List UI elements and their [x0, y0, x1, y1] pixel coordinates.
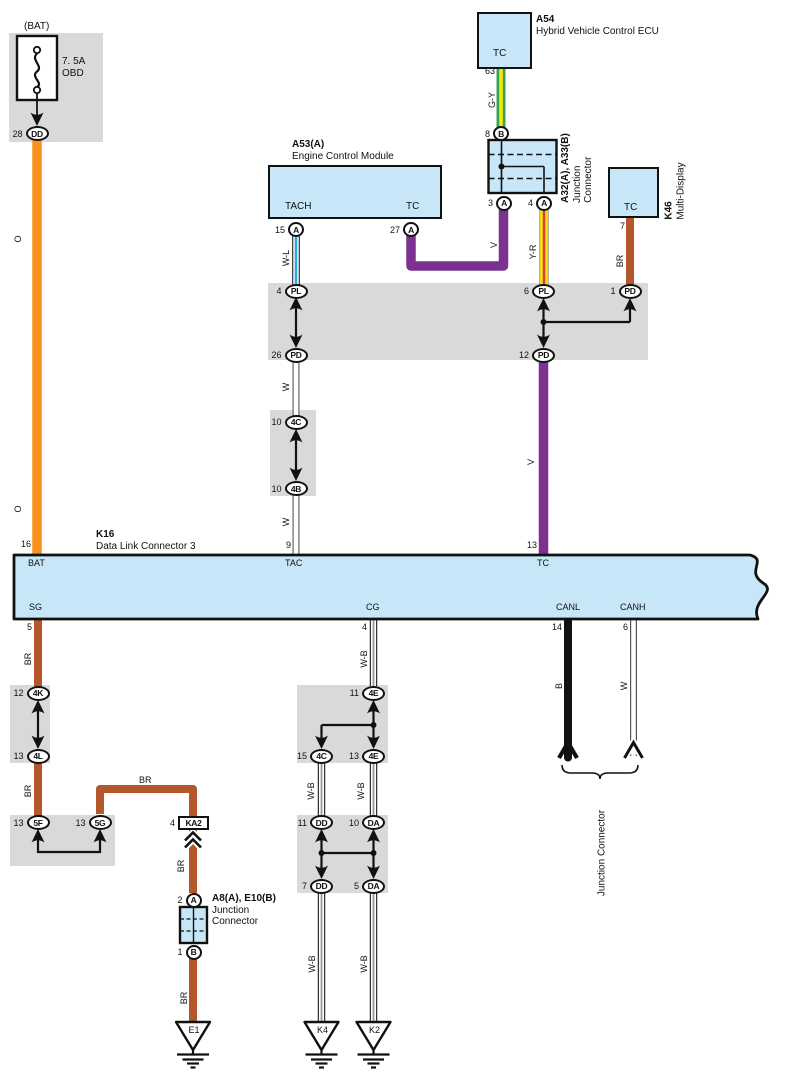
k16-terminal-bat: BAT [28, 558, 45, 568]
connector-oval: A [403, 222, 419, 237]
k16-id: K16 [96, 529, 114, 540]
connector-oval: DD [310, 879, 333, 894]
wire-label-wb-da: W-B [359, 955, 369, 972]
fuse-symbol [17, 36, 57, 126]
pin-number: 4 [276, 286, 281, 296]
wire-label-wb-dd: W-B [307, 955, 317, 972]
connector-oval: 4K [27, 686, 50, 701]
connector-4-ka2: 4 KA2 [178, 816, 209, 830]
connector-oval: 4E [362, 749, 385, 764]
pin-number: 10 [271, 417, 281, 427]
pin-number: 4 [528, 198, 533, 208]
connector-oval: A [186, 893, 202, 908]
wire-label-br-4l: BR [23, 785, 33, 798]
pin-number: 11 [298, 818, 307, 828]
connector-oval: A [536, 196, 552, 211]
connector-oval: PD [619, 284, 642, 299]
k46-name: Multi-Display [675, 162, 687, 219]
connector-13-4l: 13 4L [27, 749, 50, 764]
connector-1-pd: 1 PD [619, 284, 642, 299]
connector-oval: DD [26, 126, 49, 141]
connector-28-dd: 28 DD [26, 126, 49, 141]
wire-label-w-1: W [281, 383, 291, 392]
pin-number: 2 [177, 895, 182, 905]
pin-number: 10 [271, 484, 281, 494]
connector-oval: 4C [310, 749, 333, 764]
connector-10-4c: 10 4C [285, 415, 308, 430]
connector-oval: 4E [362, 686, 385, 701]
k16-terminal-canh: CANH [620, 602, 646, 612]
pin-number: 3 [488, 198, 493, 208]
wire-label-o-1: O [13, 235, 23, 242]
pin-number: 13 [75, 818, 85, 828]
connector-13-4e: 13 4E [362, 749, 385, 764]
connector-11-dd: 11 DD [310, 815, 333, 830]
a53-terminal-tc: TC [406, 201, 419, 212]
k16-pin-14: 14 [536, 622, 562, 632]
k16-terminal-tc: TC [537, 558, 549, 568]
wire-label-wl: W-L [281, 250, 291, 266]
pin-number: 1 [177, 947, 182, 957]
connector-27-a: 27 A [403, 222, 419, 237]
k16-name: Data Link Connector 3 [96, 541, 196, 552]
connector-oval: 5F [27, 815, 50, 830]
connector-4-pl: 4 PL [285, 284, 308, 299]
connector-oval: 4L [27, 749, 50, 764]
wire-label-wb-cg: W-B [359, 650, 369, 667]
connector-15-4c: 15 4C [310, 749, 333, 764]
ground-label-e1: E1 [188, 1025, 199, 1035]
pin-number: 1 [610, 286, 615, 296]
k16-terminal-tac: TAC [285, 558, 302, 568]
connector-3-a: 3 A [496, 196, 512, 211]
connector-oval: 5G [89, 815, 112, 830]
a54-id: A54 [536, 14, 554, 25]
a32-label: A32(A), A33(B) Junction Connector [560, 133, 595, 203]
connector-10-4b: 10 4B [285, 481, 308, 496]
a32-name-line2: Connector [583, 133, 595, 203]
a8-junction-connector-box [180, 907, 207, 943]
connector-oval: B [493, 126, 509, 141]
wire-label-wb-4c: W-B [306, 782, 316, 799]
a8-name-line1: Junction [212, 905, 249, 916]
a32-name-line1: Junction [571, 133, 583, 203]
connector-oval: PD [532, 348, 555, 363]
wire-label-gy: G-Y [487, 92, 497, 108]
connector-6-pl: 6 PL [532, 284, 555, 299]
pin-number: 11 [350, 688, 359, 698]
wire-label-br-e1: BR [179, 992, 189, 1005]
pin-number: 8 [485, 129, 490, 139]
connector-13-5f: 13 5F [27, 815, 50, 830]
connector-11-4e: 11 4E [362, 686, 385, 701]
k16-terminal-sg: SG [29, 602, 42, 612]
pin-number: 13 [13, 751, 23, 761]
a32-id: A32(A), A33(B) [560, 133, 572, 203]
pin-number: 5 [354, 881, 359, 891]
connector-4-a: 4 A [536, 196, 552, 211]
pin-number: 12 [13, 688, 23, 698]
a53-id: A53(A) [292, 139, 324, 150]
a32-junction-connector-box [489, 140, 557, 193]
connector-oval: PL [285, 284, 308, 299]
pin-number: 12 [519, 350, 529, 360]
a8-id: A8(A), E10(B) [212, 893, 276, 904]
connector-oval: PD [285, 348, 308, 363]
k16-pin-6: 6 [602, 622, 628, 632]
a54-terminal-tc: TC [493, 48, 506, 59]
pin-number: 13 [13, 818, 23, 828]
wire-label-w-canh: W [619, 682, 629, 691]
connector-12-4k: 12 4K [27, 686, 50, 701]
pin-number: 15 [297, 751, 307, 761]
connector-5-da: 5 DA [362, 879, 385, 894]
k16-pin-4: 4 [341, 622, 367, 632]
a54-pin-63: 63 [469, 66, 495, 76]
wire-label-w-2: W [281, 518, 291, 527]
ground-bars [177, 1050, 390, 1068]
wire-label-yr: Y-R [528, 245, 538, 260]
pin-number: 10 [349, 818, 359, 828]
fuse-rating: 7. 5A [62, 56, 85, 67]
pin-number: 26 [271, 350, 281, 360]
connector-oval: DA [362, 879, 385, 894]
pin-number: 4 [170, 818, 175, 828]
wire-label-b-canl: B [554, 683, 564, 689]
a54-ecu-box [477, 12, 532, 69]
k46-pin-7: 7 [599, 221, 625, 231]
connector-oval: DD [310, 815, 333, 830]
connector-15-a: 15 A [288, 222, 304, 237]
junction-connector-brace [562, 765, 638, 779]
a8-name-line2: Connector [212, 916, 258, 927]
pin-number: 7 [302, 881, 307, 891]
connector-oval: A [288, 222, 304, 237]
ground-symbols [176, 1022, 391, 1068]
wire-label-v-2: V [526, 459, 536, 465]
k16-pin-9: 9 [265, 540, 291, 550]
k16-terminal-cg: CG [366, 602, 380, 612]
wire-label-v-1: V [489, 242, 499, 248]
k46-label: K46 Multi-Display [664, 162, 687, 219]
connector-oval: PL [532, 284, 555, 299]
wire-end-chevrons [185, 743, 643, 848]
connector-12-pd: 12 PD [532, 348, 555, 363]
k16-pin-16: 16 [5, 539, 31, 549]
k16-terminal-canl: CANL [556, 602, 580, 612]
connector-7-dd: 7 DD [310, 879, 333, 894]
connector-10-da: 10 DA [362, 815, 385, 830]
connector-26-pd: 26 PD [285, 348, 308, 363]
wire-label-br-sg: BR [23, 653, 33, 666]
ground-label-k2: K2 [369, 1025, 380, 1035]
k16-connector-band [14, 555, 767, 619]
k46-terminal-tc: TC [624, 202, 637, 213]
a53-name: Engine Control Module [292, 151, 394, 162]
pin-number: 27 [390, 225, 400, 235]
connector-1-b: 1 B [186, 945, 202, 960]
fuse-name: OBD [62, 68, 84, 79]
connector-oval: DA [362, 815, 385, 830]
pin-number: 28 [12, 129, 22, 139]
wire-label-br-ka2: BR [176, 860, 186, 873]
connector-rect: KA2 [178, 816, 209, 830]
fuse-bat-label: (BAT) [24, 21, 49, 32]
connector-oval: A [496, 196, 512, 211]
connector-13-5g: 13 5G [89, 815, 112, 830]
wire-label-o-2: O [13, 505, 23, 512]
ground-label-k4: K4 [317, 1025, 328, 1035]
pin-number: 6 [524, 286, 529, 296]
connector-2-a: 2 A [186, 893, 202, 908]
connector-8-b: 8 B [493, 126, 509, 141]
pin-number: 13 [349, 751, 359, 761]
k46-id: K46 [664, 162, 676, 219]
a54-name: Hybrid Vehicle Control ECU [536, 26, 659, 37]
wire-label-br-k46: BR [615, 255, 625, 268]
connector-oval: 4B [285, 481, 308, 496]
wiring-diagram: (BAT) 7. 5A OBD A54 Hybrid Vehicle Contr… [0, 0, 787, 1076]
connector-oval: 4C [285, 415, 308, 430]
junction-connector-brace-label: Junction Connector [597, 810, 608, 896]
pin-number: 15 [275, 225, 285, 235]
k16-pin-5: 5 [6, 622, 32, 632]
a53-terminal-tach: TACH [285, 201, 311, 212]
k16-pin-13: 13 [511, 540, 537, 550]
wire-label-wb-4e: W-B [356, 782, 366, 799]
wire-label-br-horizontal: BR [139, 775, 152, 785]
connector-oval: B [186, 945, 202, 960]
